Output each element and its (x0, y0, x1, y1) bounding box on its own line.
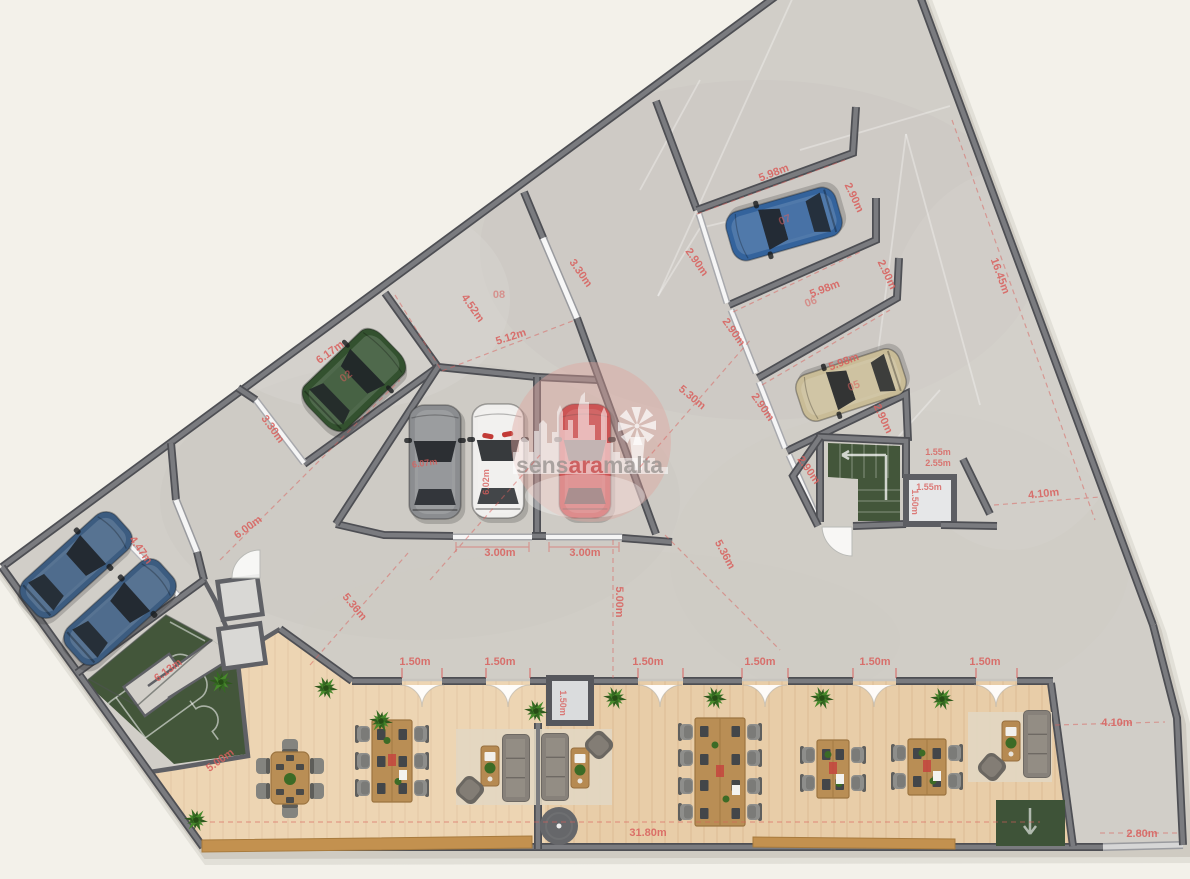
svg-text:1.50m: 1.50m (399, 656, 430, 668)
svg-text:31.80m: 31.80m (629, 827, 667, 839)
svg-text:1.55m: 1.55m (925, 447, 951, 457)
svg-text:3.00m: 3.00m (569, 547, 600, 559)
svg-text:1.50m: 1.50m (910, 489, 920, 515)
svg-text:6.02m: 6.02m (481, 469, 491, 495)
svg-text:1.50m: 1.50m (558, 690, 568, 716)
svg-text:2.80m: 2.80m (1126, 828, 1157, 840)
svg-text:1.50m: 1.50m (484, 656, 515, 668)
svg-text:1.50m: 1.50m (744, 656, 775, 668)
svg-text:4.10m: 4.10m (1101, 717, 1132, 729)
svg-text:5.00m: 5.00m (613, 586, 625, 617)
svg-text:3.00m: 3.00m (484, 547, 515, 559)
svg-text:1.50m: 1.50m (969, 656, 1000, 668)
svg-text:08: 08 (493, 289, 505, 301)
svg-text:1.50m: 1.50m (632, 656, 663, 668)
svg-text:1.50m: 1.50m (859, 656, 890, 668)
svg-text:2.55m: 2.55m (925, 458, 951, 468)
